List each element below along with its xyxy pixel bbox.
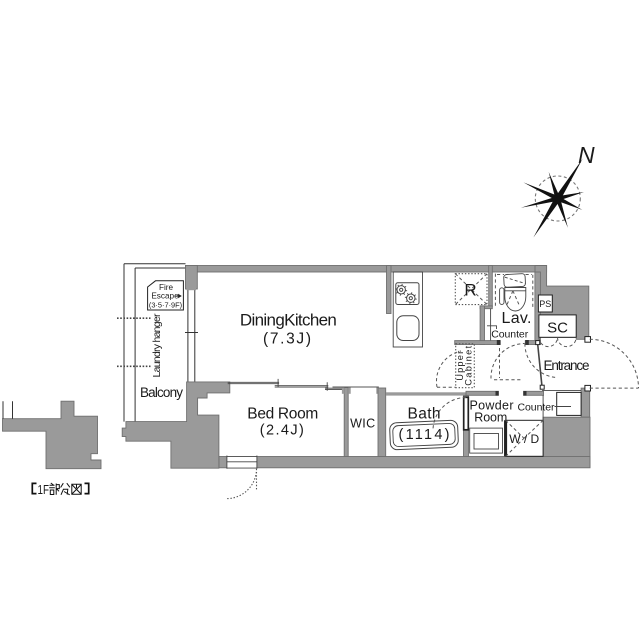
svg-text:Cabinet: Cabinet [464, 345, 474, 385]
svg-text:N: N [578, 142, 595, 168]
svg-text:(7.3J): (7.3J) [263, 331, 311, 348]
svg-text:PS: PS [539, 299, 551, 309]
svg-text:Entrance: Entrance [544, 358, 590, 373]
svg-text:Bed Room: Bed Room [247, 406, 318, 423]
svg-text:SC: SC [547, 320, 568, 337]
svg-text:Bath: Bath [408, 406, 441, 423]
svg-text:Lav.: Lav. [502, 310, 532, 327]
svg-text:Room: Room [474, 411, 507, 425]
svg-text:Laundry hanger: Laundry hanger [151, 313, 163, 378]
svg-text:(3·5·7·9F): (3·5·7·9F) [149, 300, 182, 309]
svg-text:WIC: WIC [350, 417, 375, 431]
svg-text:DiningKitchen: DiningKitchen [240, 311, 337, 330]
svg-text:W/D: W/D [509, 432, 539, 446]
svg-text:Counter: Counter [518, 402, 556, 414]
svg-text:1F: 1F [38, 482, 50, 497]
svg-text:R: R [464, 281, 476, 300]
svg-text:(2.4J): (2.4J) [260, 422, 304, 438]
svg-text:Counter: Counter [491, 329, 529, 341]
svg-text:Balcony: Balcony [140, 385, 183, 400]
svg-text:(1114): (1114) [399, 427, 450, 443]
